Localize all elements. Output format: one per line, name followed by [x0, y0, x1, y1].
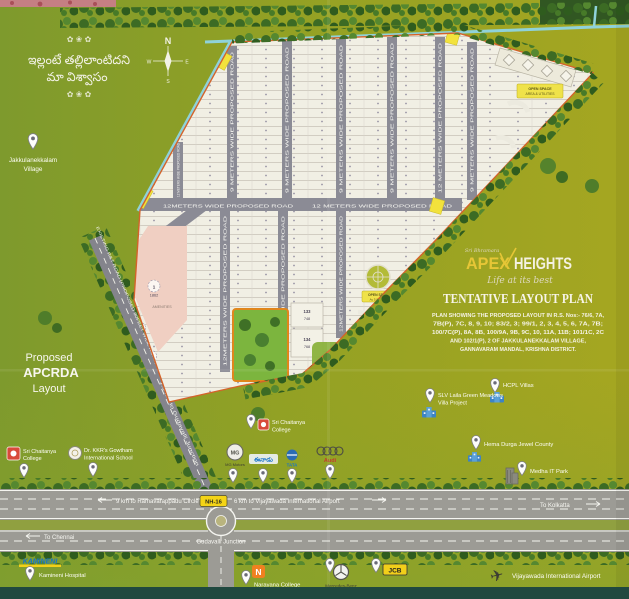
plot134-area: 768	[304, 345, 310, 349]
plot134-number: 134	[304, 337, 312, 342]
landmark-label: Sri Chaitanya	[23, 449, 57, 455]
landmark-label: International School	[84, 456, 133, 462]
village-label-2: Village	[24, 166, 43, 173]
median	[0, 520, 629, 530]
road-label: 12 METERS WIDE PROPOSED ROAD	[438, 43, 443, 193]
road-label: 12METERS WIDE PROPOSED ROAD	[223, 216, 228, 366]
eenadu-logo: ఈనాడు	[254, 457, 273, 464]
brand-apex: APEX	[466, 254, 511, 273]
plan-desc-line: GANNAVARAM MANDAL, KRISHNA DISTRICT.	[460, 347, 576, 353]
fold-line-vertical	[327, 0, 330, 599]
landmark-label: HCPL Villas	[503, 383, 534, 389]
apcrda-line2: APCRDA	[23, 365, 79, 380]
landmark-label: MG Motors	[225, 462, 245, 467]
plot133-number: 133	[304, 309, 312, 314]
distance-west: 9 km to Ramavarappadu Circle	[116, 499, 199, 505]
quote-line2: మా విశ్వాసం	[46, 70, 107, 86]
kamineni-logo: KAMINENI	[23, 559, 59, 566]
nh16-badge: NH-16	[200, 496, 227, 507]
landmark-label: Dr. KKR's Gowtham	[84, 448, 133, 454]
village-label-1: Jakkulanekkalam	[9, 157, 57, 164]
to-kolkatta: To Kolkatta	[540, 503, 570, 509]
landmark-label: Hema Durga Jewel County	[484, 442, 553, 448]
narayana-logo-text: N	[255, 567, 261, 577]
road-label: 9 METERS WIDE PROPOSED ROAD	[390, 43, 395, 193]
bottom-table-edge	[0, 587, 629, 599]
quote-flourish-top: ✿ ❀ ✿	[67, 35, 92, 44]
road-label: 9 METERS WIDE PROPOSED ROAD	[339, 45, 344, 193]
plan-desc-line: 100/7C(P), 8A, 8B, 100/9A, 9B, 9C, 10, 1…	[432, 330, 604, 336]
landmark-label: Medha IT Park	[530, 469, 568, 475]
layout-brochure-photo: ✿ ❀ ✿ ఇల్లంటే తల్లిలాంటిదని మా విశ్వాసం …	[0, 0, 629, 599]
open-space-top-label2: AREA & UTILITIES	[525, 92, 555, 96]
fabric-edge	[0, 0, 116, 7]
compass-n: N	[165, 36, 172, 46]
map-poster: ✿ ❀ ✿ ఇల్లంటే తల్లిలాంటిదని మా విశ్వాసం …	[0, 0, 629, 599]
plan-desc-line: PLAN SHOWING THE PROPOSED LAYOUT IN R.S.…	[432, 313, 605, 319]
road-label: 9 METERS WIDE PROPOSED ROAD	[470, 48, 475, 192]
plot1-area: 1862	[150, 294, 158, 298]
landmark-label: College	[272, 428, 291, 434]
apcrda-line3: Layout	[32, 383, 65, 395]
mg-logo-text: MG	[231, 451, 240, 457]
gowtham-logo	[69, 447, 82, 460]
brand-tagline: Life at its best	[486, 276, 553, 286]
brand-heights: HEIGHTS	[514, 254, 572, 273]
roundabout-island	[216, 516, 227, 527]
plan-title: TENTATIVE LAYOUT PLAN	[443, 291, 593, 306]
amenities-label: AMENITIES	[152, 305, 172, 309]
tata-logo-text: TATA	[287, 463, 299, 468]
quote-flourish-bottom: ✿ ❀ ✿	[67, 90, 92, 99]
road-label: 12 METERS WIDE PROPOSED ROAD	[177, 143, 181, 197]
plan-desc-line: AND 102/1(P), 2 OF JAKKULANEKKALAM VILLA…	[450, 339, 586, 345]
landmark-label: Vijayawada International Airport	[512, 573, 601, 580]
distance-east: 6 km to Vijayawada International Airport	[234, 499, 340, 505]
edge-shadow	[616, 0, 629, 599]
road-label: 9 METERS WIDE PROPOSED ROAD	[230, 52, 235, 192]
road-label-horizontal: 12METERS WIDE PROPOSED ROAD	[163, 203, 294, 208]
quote-line1: ఇల్లంటే తల్లిలాంటిదని	[28, 53, 130, 69]
apcrda-line1: Proposed	[25, 352, 72, 364]
landmark-label: Kamineni Hospital	[39, 573, 86, 579]
nh16-label: NH-16	[205, 500, 223, 506]
plan-desc-line: 7B(P), 7C, 8, 9, 10; 83/2, 3; 99/1, 2, 3…	[433, 322, 603, 328]
junction-label: Gudavalli Junction	[196, 540, 245, 546]
landmark-label: Villa Project	[438, 401, 467, 407]
road-label: 9 METERS WIDE PROPOSED ROAD	[285, 47, 290, 193]
plot133-area: 748	[304, 317, 310, 321]
landmark-label: SLV Laila Green Meadows	[438, 393, 503, 399]
landmark-label: College	[23, 456, 42, 462]
open-space-top-label1: OPEN SPACE	[528, 87, 552, 91]
compass-w: W	[147, 60, 152, 66]
landmark-label: Sri Chaitanya	[272, 420, 306, 426]
road-label: 12METERS WIDE PROPOSED ROAD	[339, 216, 344, 332]
fold-line-horizontal	[0, 369, 629, 372]
to-chennai: To Chennai	[44, 535, 74, 541]
jcb-logo-text: JCB	[388, 568, 401, 575]
audi-logo-text: Audi	[324, 458, 337, 464]
